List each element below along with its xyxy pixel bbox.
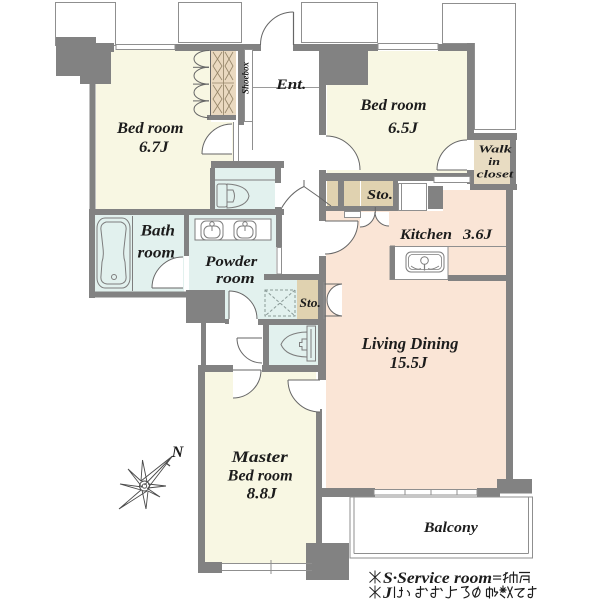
svg-text:8.8J: 8.8J [247,486,278,503]
svg-text:Bed room: Bed room [359,97,426,114]
svg-text:Balcony: Balcony [423,520,478,536]
svg-text:S·Service room=: S·Service room= [383,570,502,587]
svg-text:in: in [488,156,500,168]
svg-text:Ent.: Ent. [275,77,306,93]
svg-text:Sto.: Sto. [367,187,393,202]
svg-text:Master: Master [230,449,288,466]
svg-text:Bed room: Bed room [116,120,184,137]
svg-text:room: room [216,271,255,287]
svg-text:6.5J: 6.5J [388,120,419,137]
svg-text:Kitchen: Kitchen [399,227,452,243]
svg-text:Walk: Walk [478,144,512,156]
svg-text:room: room [138,245,176,262]
svg-text:Sto.: Sto. [300,296,321,310]
svg-text:6.7J: 6.7J [139,139,170,156]
svg-text:Bed room: Bed room [227,468,293,485]
svg-text:J: J [382,585,393,600]
svg-text:15.5J: 15.5J [390,353,428,372]
svg-text:Powder: Powder [205,254,257,270]
svg-text:closet: closet [477,169,515,181]
svg-text:Living Dining: Living Dining [361,334,459,353]
svg-text:N: N [171,444,185,461]
svg-text:3.6J: 3.6J [462,227,493,243]
svg-text:Bath: Bath [140,223,176,240]
svg-text:Shoebox: Shoebox [241,62,251,95]
